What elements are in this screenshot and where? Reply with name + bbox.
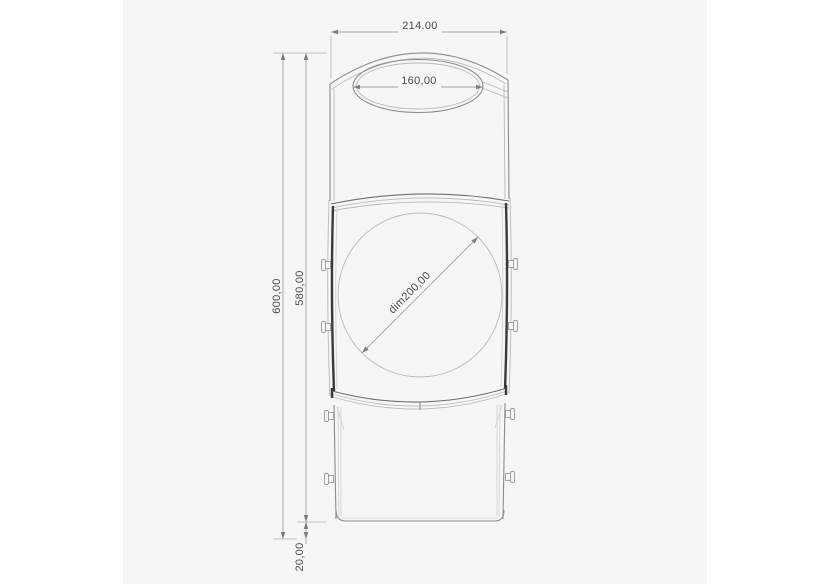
hinge-bolt: [509, 259, 518, 270]
page: 214.00 160,00 600,00 580,00: [0, 0, 830, 584]
hinge-bolt: [506, 409, 515, 420]
dim-label-overall-height: 600,00: [271, 278, 283, 313]
hinge-bolt: [322, 260, 331, 271]
dim-label-upper-height: 580,00: [294, 270, 306, 305]
hinge-bolt: [509, 321, 518, 332]
hinge-bolt: [325, 474, 334, 485]
hinge-bolt: [322, 322, 331, 333]
hinge-bolt: [506, 472, 515, 483]
dim-label-top-width: 214.00: [402, 20, 437, 32]
dim-label-base-height: 20,00: [294, 542, 306, 571]
hinge-bolt: [325, 411, 334, 422]
dim-label-opening-width: 160,00: [401, 75, 436, 87]
technical-drawing-canvas: 214.00 160,00 600,00 580,00: [0, 0, 830, 584]
